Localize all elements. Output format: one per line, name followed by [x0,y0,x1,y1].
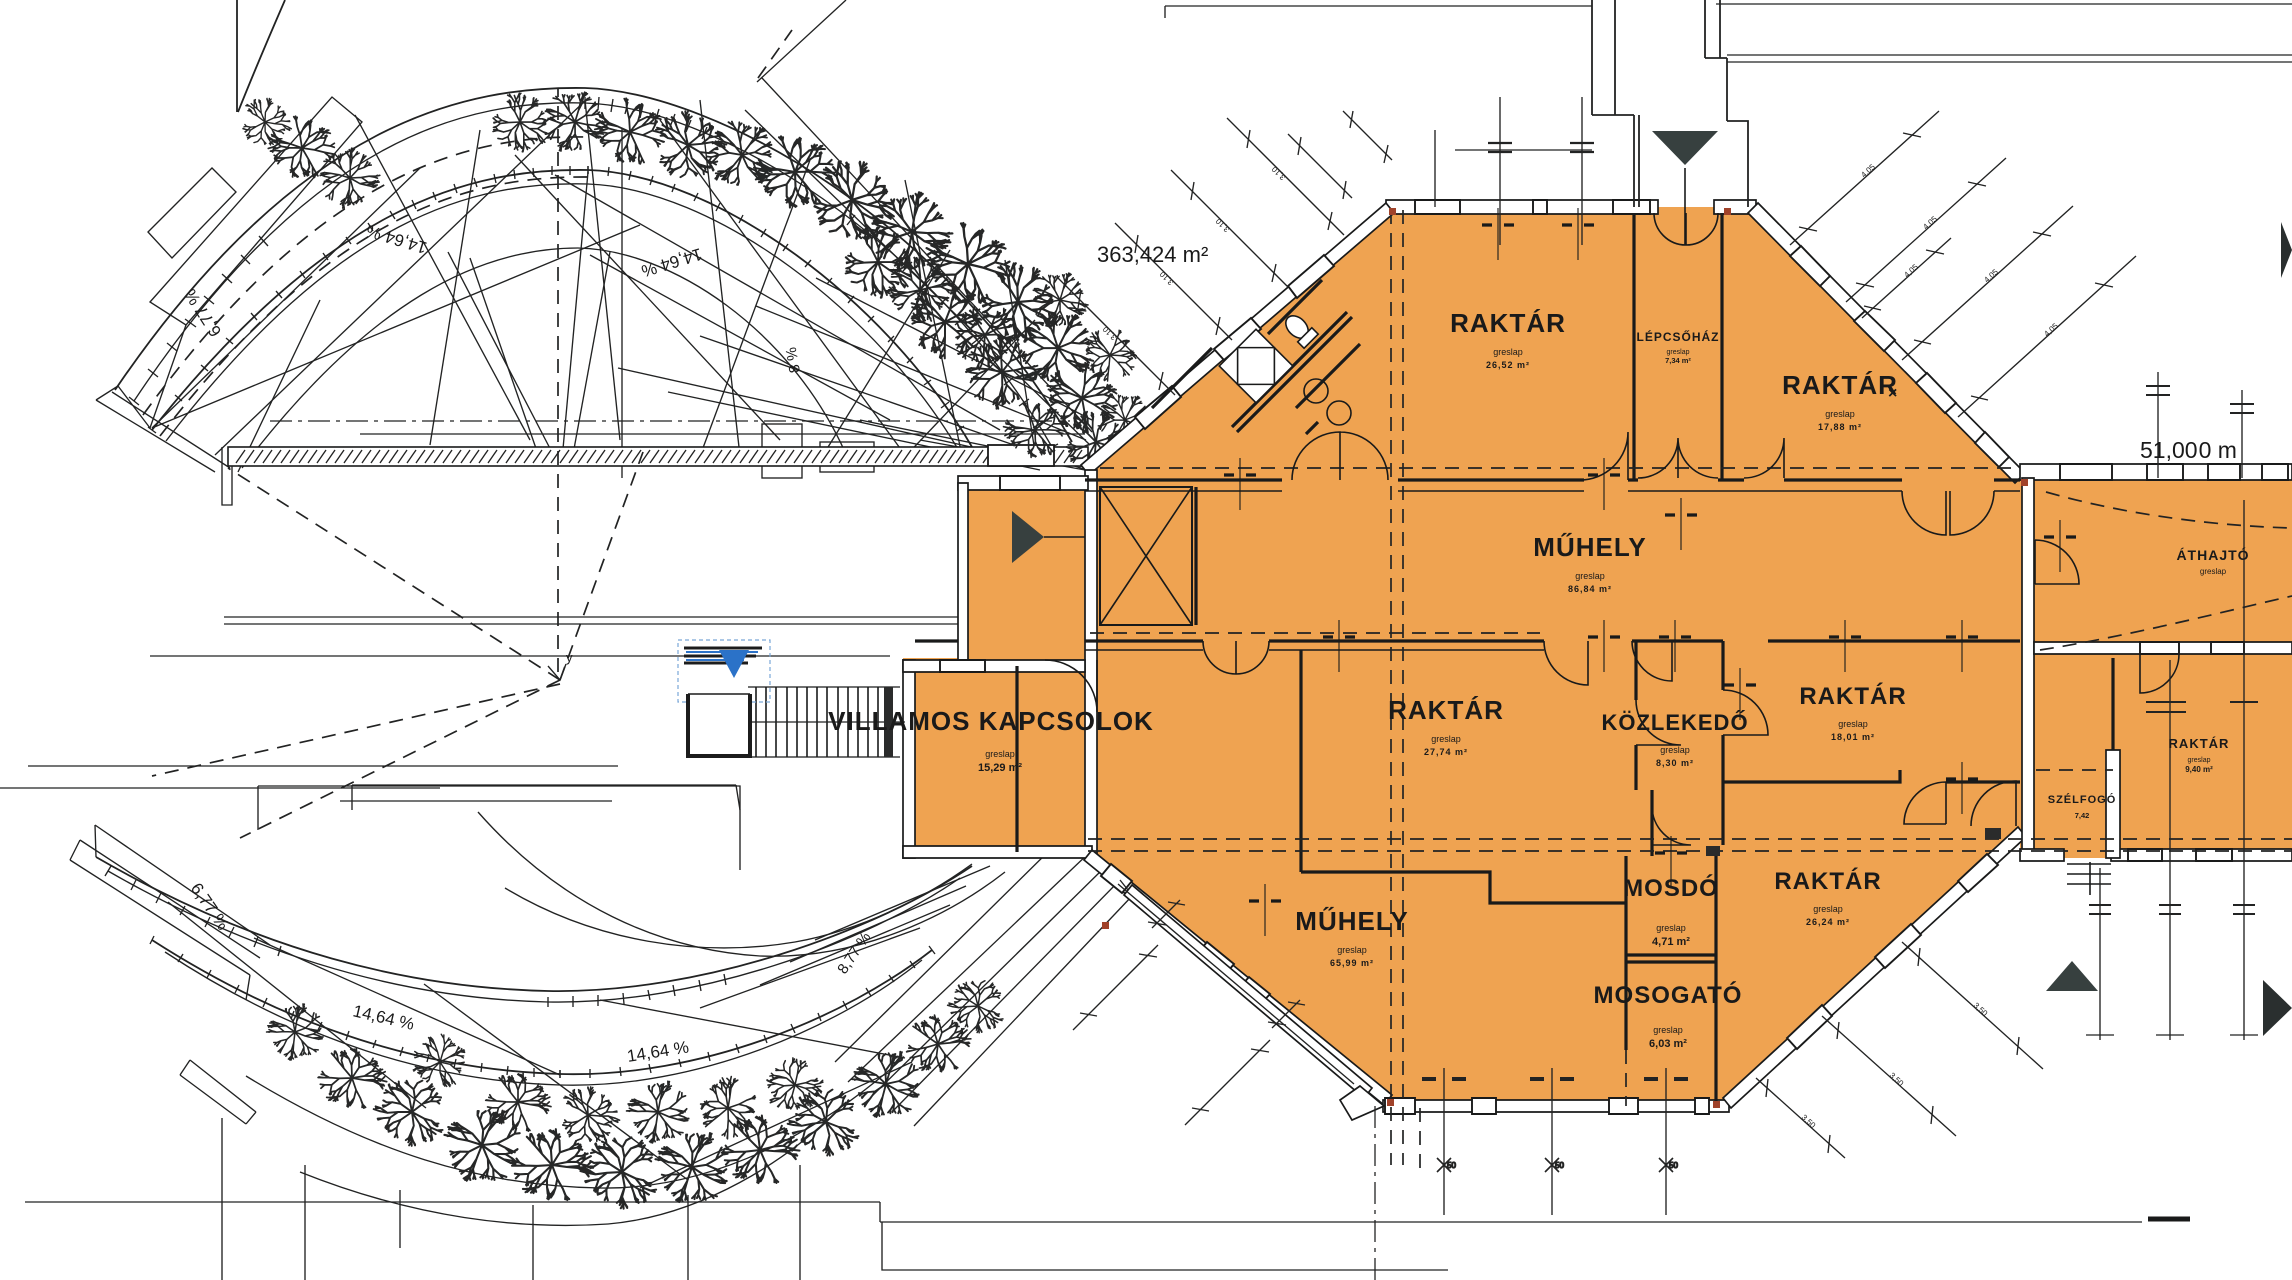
svg-text:65,99 m²: 65,99 m² [1330,958,1374,968]
svg-text:greslap: greslap [1825,409,1855,419]
svg-text:26,52 m²: 26,52 m² [1486,360,1530,370]
svg-text:86,84 m²: 86,84 m² [1568,584,1612,594]
svg-text:MOSOGATÓ: MOSOGATÓ [1594,981,1743,1009]
svg-text:4,71 m²: 4,71 m² [1652,936,1690,948]
svg-text:8,30 m²: 8,30 m² [1656,758,1694,768]
svg-text:MŰHELY: MŰHELY [1295,906,1408,936]
svg-text:greslap: greslap [1575,571,1605,581]
svg-text:RAKTÁR: RAKTÁR [2169,736,2230,751]
svg-text:greslap: greslap [1431,734,1461,744]
svg-text:RAKTÁR: RAKTÁR [1782,370,1898,400]
svg-text:greslap: greslap [1656,923,1686,933]
svg-text:RAKTÁR: RAKTÁR [1774,867,1881,895]
svg-text:LÉPCSŐHÁZ: LÉPCSŐHÁZ [1636,329,1719,344]
svg-text:15,29 m²: 15,29 m² [978,762,1022,774]
svg-text:51,000 m: 51,000 m [2140,437,2237,463]
svg-text:greslap: greslap [985,749,1015,759]
svg-text:greslap: greslap [2188,757,2211,764]
svg-text:50: 50 [1447,1161,1456,1170]
svg-text:MŰHELY: MŰHELY [1533,532,1646,562]
svg-text:9,40 m²: 9,40 m² [2185,765,2213,774]
svg-text:×: × [1888,385,1897,402]
svg-text:SZÉLFOGÓ: SZÉLFOGÓ [2048,793,2117,806]
svg-text:27,74 m²: 27,74 m² [1424,747,1468,757]
svg-text:greslap: greslap [1653,1025,1683,1035]
svg-text:y: y [566,650,573,665]
svg-text:greslap: greslap [1337,945,1367,955]
svg-text:7,42: 7,42 [2075,811,2090,820]
svg-text:17,88 m²: 17,88 m² [1818,422,1862,432]
svg-text:RAKTÁR: RAKTÁR [1388,695,1504,725]
svg-text:26,24 m²: 26,24 m² [1806,917,1850,927]
svg-text:greslap: greslap [1660,745,1690,755]
svg-text:ÁTHAJTÓ: ÁTHAJTÓ [2176,546,2249,563]
svg-text:7,34 m²: 7,34 m² [1665,356,1691,365]
svg-text:greslap: greslap [1838,719,1868,729]
svg-text:greslap: greslap [1493,347,1523,357]
svg-text:363,424 m²: 363,424 m² [1097,242,1208,267]
svg-text:50: 50 [1669,1161,1678,1170]
svg-text:greslap: greslap [2200,567,2227,576]
svg-text:RAKTÁR: RAKTÁR [1799,682,1906,710]
svg-text:greslap: greslap [1667,349,1690,356]
svg-text:6,03 m²: 6,03 m² [1649,1038,1687,1050]
svg-text:RAKTÁR: RAKTÁR [1450,308,1566,338]
svg-text:VILLAMOS KAPCSOLOK: VILLAMOS KAPCSOLOK [828,706,1154,736]
svg-text:50: 50 [1555,1161,1564,1170]
svg-text:18,01 m²: 18,01 m² [1831,732,1875,742]
svg-text:greslap: greslap [1813,904,1843,914]
svg-text:KÖZLEKEDŐ: KÖZLEKEDŐ [1601,710,1748,735]
